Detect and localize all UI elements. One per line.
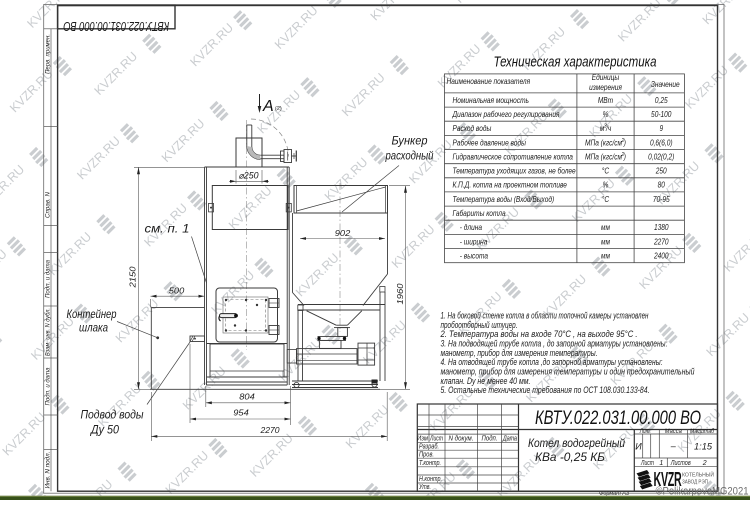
svg-text:250: 250: [655, 166, 667, 176]
svg-text:Лист: Лист: [640, 460, 654, 467]
svg-text:Т.контр.: Т.контр.: [419, 460, 441, 467]
svg-text:2: 2: [620, 152, 624, 158]
svg-text:Наименование показателя: Наименование показателя: [447, 76, 531, 86]
svg-text:–: –: [670, 441, 677, 451]
svg-text:КОТЕЛЬНЫЙ: КОТЕЛЬНЫЙ: [682, 471, 714, 479]
svg-text:- ширина: - ширина: [453, 236, 488, 246]
svg-text:Перв. примен.: Перв. примен.: [46, 34, 52, 74]
svg-text:80: 80: [658, 180, 666, 190]
svg-text:Дата: Дата: [502, 435, 517, 442]
svg-text:мм: мм: [601, 236, 610, 246]
svg-text:50-100: 50-100: [651, 109, 672, 119]
svg-text:5. Остальные технические треб: 5. Остальные технические требования по О…: [441, 385, 650, 395]
svg-text:N докум.: N докум.: [449, 434, 474, 442]
svg-text:Изм: Изм: [417, 435, 428, 442]
svg-text:И: И: [635, 442, 642, 452]
svg-text:Инв. N подл.: Инв. N подл.: [46, 452, 52, 489]
svg-text:902: 902: [335, 228, 351, 238]
svg-text:70-95: 70-95: [653, 194, 670, 204]
svg-text:Техническая характеристика: Техническая характеристика: [494, 55, 657, 71]
svg-text:К.П.Д. котла на проектном топл: К.П.Д. котла на проектном топливе: [453, 180, 568, 190]
svg-text:2400: 2400: [653, 250, 669, 260]
svg-text:Справ. N: Справ. N: [46, 191, 52, 218]
svg-text:Контейнер: Контейнер: [67, 309, 117, 321]
svg-text:см. п. 1: см. п. 1: [145, 222, 190, 236]
svg-text:Температура уходящих газов, не: Температура уходящих газов, не более: [453, 166, 576, 176]
svg-text:©PolikarpovaMG2021: ©PolikarpovaMG2021: [656, 486, 749, 498]
svg-text:Разраб.: Разраб.: [419, 442, 439, 450]
svg-text:Диапазон рабочего регулировани: Диапазон рабочего регулирования: [452, 109, 560, 119]
svg-text:мм: мм: [601, 250, 610, 260]
svg-text:Подп. и дата: Подп. и дата: [46, 259, 52, 298]
svg-text:Габариты котла: Габариты котла: [453, 208, 506, 218]
svg-text:2150: 2150: [128, 266, 138, 288]
svg-text:%: %: [603, 180, 609, 190]
svg-text:1: 1: [659, 460, 663, 467]
svg-text:Ду 50: Ду 50: [89, 425, 119, 437]
svg-text:МВт: МВт: [598, 95, 613, 105]
svg-text:Температура воды (Вход/Выход): Температура воды (Вход/Выход): [453, 194, 555, 204]
svg-text:мм: мм: [601, 222, 610, 232]
svg-text:500: 500: [169, 286, 185, 296]
svg-text:Гидравлическое сопротивление к: Гидравлическое сопротивление котла: [453, 151, 574, 161]
svg-text:Масштаб: Масштаб: [690, 427, 714, 435]
svg-text:Расход воды: Расход воды: [453, 123, 492, 133]
svg-text:МПа (кгс/см ): МПа (кгс/см ): [585, 137, 626, 147]
svg-text:Подп.: Подп.: [482, 434, 498, 442]
svg-text:Котел водогрейный: Котел водогрейный: [528, 436, 625, 450]
svg-text:Листов: Листов: [670, 460, 691, 467]
svg-text:Подп. и дата: Подп. и дата: [46, 367, 52, 406]
svg-text:КВТУ.022.031.00.000 ВО: КВТУ.022.031.00.000 ВО: [63, 19, 169, 34]
svg-text:Лист: Лист: [429, 435, 443, 442]
svg-text:Значение: Значение: [651, 79, 680, 89]
svg-text:°С: °С: [602, 166, 610, 176]
svg-text:Бункер: Бункер: [392, 136, 429, 148]
svg-text:расходный: расходный: [385, 151, 434, 163]
svg-text:2: 2: [620, 138, 624, 144]
svg-text:Утв.: Утв.: [418, 484, 431, 491]
svg-text:2: 2: [702, 460, 707, 467]
svg-text:%: %: [603, 109, 609, 119]
svg-text:Подвод воды: Подвод воды: [81, 410, 144, 422]
svg-text:Масса: Масса: [665, 428, 682, 435]
svg-text:0,25: 0,25: [655, 95, 668, 105]
svg-text:- высота: - высота: [453, 250, 489, 260]
svg-text:Лит.: Лит.: [639, 428, 651, 435]
svg-text:2270: 2270: [259, 425, 279, 435]
svg-text:0,6(6,0): 0,6(6,0): [650, 137, 673, 147]
svg-text:1:15: 1:15: [694, 442, 713, 452]
svg-text:Взам. инв. N дубл.: Взам. инв. N дубл.: [46, 308, 52, 356]
svg-text:Н.контр.: Н.контр.: [419, 476, 442, 483]
svg-text:Единицы: Единицы: [592, 72, 620, 82]
svg-text:- длина: - длина: [453, 222, 483, 232]
svg-text:КВа -0,25 КБ: КВа -0,25 КБ: [535, 450, 605, 464]
svg-text:КВТУ.022.031.00.000 ВО: КВТУ.022.031.00.000 ВО: [535, 408, 701, 429]
svg-text:МПа (кгс/см ): МПа (кгс/см ): [585, 151, 626, 161]
svg-text:1960: 1960: [395, 283, 405, 304]
svg-text:1380: 1380: [654, 222, 669, 232]
svg-text:(2): (2): [275, 106, 282, 112]
svg-text:шлака: шлака: [79, 323, 108, 335]
svg-text:измерения: измерения: [589, 82, 622, 92]
svg-text:954: 954: [233, 408, 249, 418]
svg-text:0,02(0,2): 0,02(0,2): [648, 151, 674, 161]
svg-text:⌀250: ⌀250: [239, 171, 259, 181]
svg-text:°С: °С: [602, 194, 610, 204]
svg-text:А: А: [262, 98, 274, 115]
svg-text:Номинальная мощность: Номинальная мощность: [453, 95, 530, 105]
svg-text:9: 9: [659, 123, 663, 133]
svg-text:2270: 2270: [653, 236, 669, 246]
svg-text:Пров.: Пров.: [419, 451, 434, 458]
svg-text:804: 804: [239, 392, 255, 402]
svg-text:Рабочее давление воды: Рабочее давление воды: [453, 137, 526, 147]
